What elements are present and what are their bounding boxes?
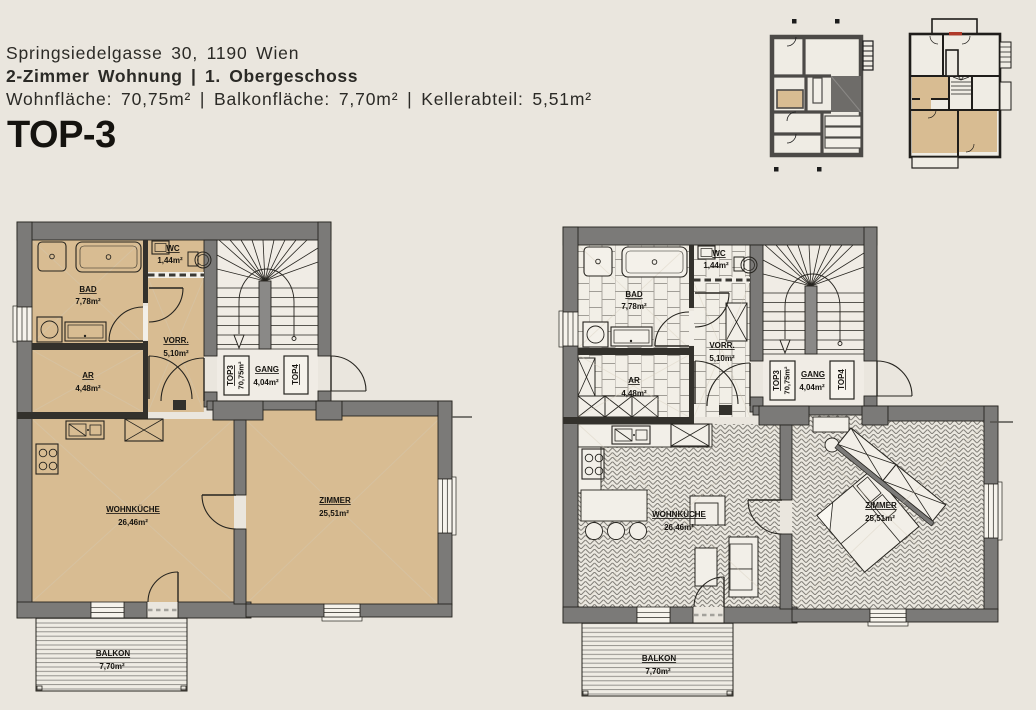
svg-text:TOP-3: TOP-3 [7,114,116,156]
svg-text:Wohnfläche: 70,75m² | Balkonfl: Wohnfläche: 70,75m² | Balkonfläche: 7,70… [6,89,592,109]
svg-text:2-Zimmer Wohnung | 1. Obergesc: 2-Zimmer Wohnung | 1. Obergeschoss [6,66,358,86]
svg-text:Springsiedelgasse 30, 1190 Wie: Springsiedelgasse 30, 1190 Wien [6,43,299,63]
